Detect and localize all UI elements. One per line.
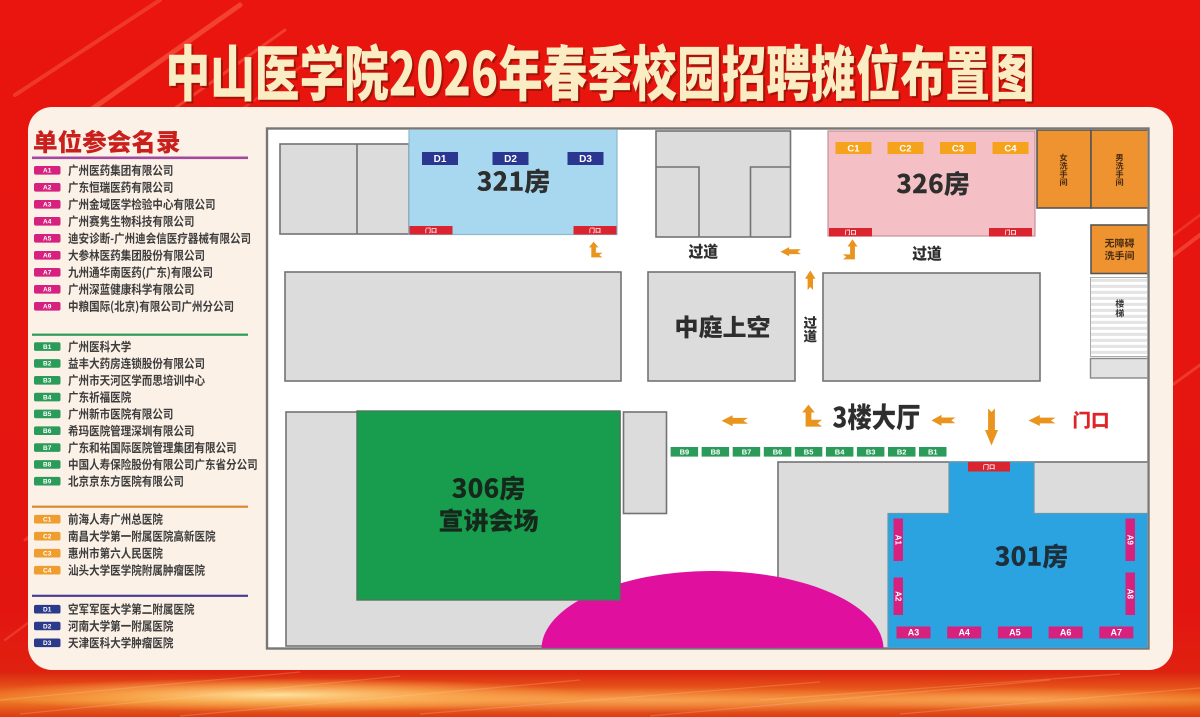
svg-text:B3: B3 [43,378,52,385]
svg-text:B8: B8 [43,462,52,469]
svg-text:A6: A6 [43,253,52,260]
svg-text:A9: A9 [1126,535,1135,546]
svg-text:A5: A5 [43,236,52,243]
svg-text:C1: C1 [847,143,860,154]
svg-text:D2: D2 [504,154,517,165]
svg-text:B4: B4 [43,394,52,401]
svg-text:B6: B6 [43,428,52,435]
svg-text:D1: D1 [43,607,52,614]
svg-text:C1: C1 [43,517,52,524]
svg-text:D3: D3 [579,154,592,165]
svg-text:A2: A2 [43,185,52,192]
svg-text:A1: A1 [43,168,52,175]
svg-text:A7: A7 [43,270,52,277]
svg-text:A8: A8 [43,287,52,294]
svg-text:D3: D3 [43,640,52,647]
svg-text:A3: A3 [43,202,52,209]
svg-text:B1: B1 [43,344,52,351]
svg-text:B7: B7 [43,445,52,452]
svg-text:A5: A5 [1009,628,1021,638]
svg-text:B9: B9 [680,448,690,457]
svg-text:A1: A1 [894,535,903,546]
svg-text:B8: B8 [711,448,721,457]
svg-text:C3: C3 [43,551,52,558]
svg-text:C4: C4 [43,568,52,575]
svg-text:A9: A9 [43,304,52,311]
svg-text:B5: B5 [43,411,52,418]
svg-text:A3: A3 [908,628,920,638]
svg-text:B6: B6 [773,448,783,457]
svg-text:C3: C3 [952,143,964,154]
svg-text:C2: C2 [43,534,52,541]
svg-text:B1: B1 [928,448,938,457]
svg-text:B7: B7 [742,448,752,457]
svg-text:A4: A4 [43,219,52,226]
svg-text:B2: B2 [43,361,52,368]
svg-text:B9: B9 [43,479,52,486]
svg-text:B4: B4 [835,448,845,457]
svg-text:B3: B3 [866,448,876,457]
svg-text:B2: B2 [897,448,907,457]
svg-text:A7: A7 [1111,628,1123,638]
svg-text:C4: C4 [1004,143,1017,154]
svg-text:D2: D2 [43,623,52,630]
svg-text:B5: B5 [804,448,814,457]
svg-text:A6: A6 [1060,628,1072,638]
svg-text:A8: A8 [1126,589,1135,600]
svg-text:D1: D1 [434,154,447,165]
svg-text:A2: A2 [893,591,902,602]
svg-text:C2: C2 [899,143,911,154]
svg-text:A4: A4 [958,628,970,638]
